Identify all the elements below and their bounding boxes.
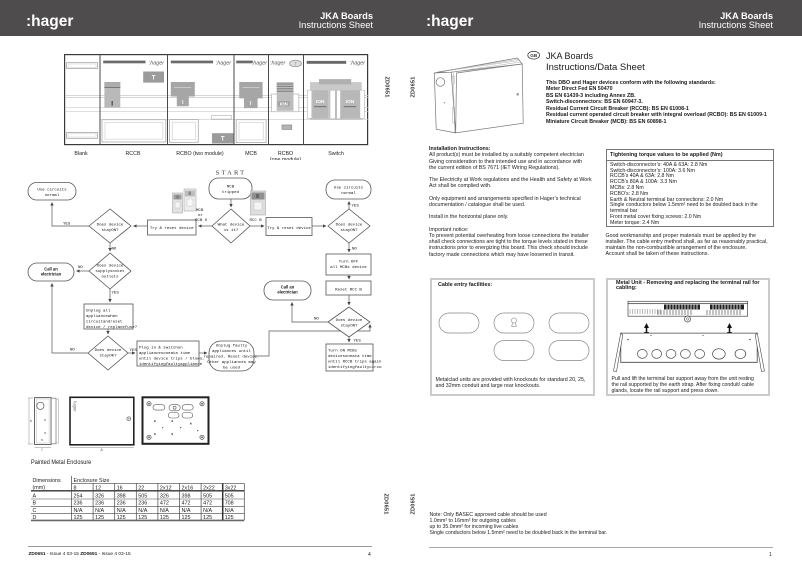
svg-text:Dimensions: Dimensions bbox=[33, 478, 61, 484]
svg-text:125: 125 bbox=[95, 515, 104, 521]
svg-text:16: 16 bbox=[117, 486, 123, 492]
svg-text:2x16: 2x16 bbox=[182, 486, 194, 492]
svg-text:N/A: N/A bbox=[74, 508, 83, 514]
svg-text:GB: GB bbox=[530, 53, 538, 58]
svg-text:472: 472 bbox=[203, 501, 212, 507]
svg-text:Enclosure Size: Enclosure Size bbox=[74, 478, 110, 484]
svg-text:B: B bbox=[30, 419, 32, 423]
svg-text:or: or bbox=[198, 214, 203, 218]
svg-text:A: A bbox=[33, 493, 37, 499]
svg-text:N/A: N/A bbox=[117, 508, 126, 514]
svg-text:Use circuits: Use circuits bbox=[334, 186, 364, 191]
svg-text:ION: ION bbox=[316, 99, 325, 105]
svg-text:T: T bbox=[152, 75, 156, 81]
svg-text:236: 236 bbox=[117, 501, 126, 507]
svg-text:236: 236 bbox=[138, 501, 147, 507]
svg-text:device / replacefuse?: device / replacefuse? bbox=[86, 325, 138, 330]
svg-text:YES: YES bbox=[130, 349, 138, 353]
svg-text:(mm): (mm) bbox=[33, 485, 46, 491]
svg-text:START: START bbox=[216, 170, 247, 177]
svg-text:Switch: Switch bbox=[328, 151, 344, 157]
svg-text:electrician: electrician bbox=[41, 272, 62, 277]
svg-text:circuitandreset: circuitandreset bbox=[86, 320, 123, 325]
svg-text:Does device: Does device bbox=[95, 348, 122, 353]
svg-text:254: 254 bbox=[74, 493, 83, 499]
svg-text:A: A bbox=[101, 448, 104, 452]
svg-text::hager: :hager bbox=[270, 61, 285, 67]
svg-text:(one module): (one module) bbox=[270, 157, 301, 160]
svg-text:electrician: electrician bbox=[277, 290, 298, 295]
svg-text:472: 472 bbox=[160, 501, 169, 507]
svg-text::hager: :hager bbox=[149, 60, 164, 66]
svg-text:NO: NO bbox=[78, 266, 83, 270]
svg-text:Turn OFF: Turn OFF bbox=[339, 261, 359, 265]
svg-text:T: T bbox=[221, 137, 225, 143]
svg-text:N/A: N/A bbox=[203, 508, 212, 514]
svg-text:all MCBs device: all MCBs device bbox=[330, 265, 367, 270]
svg-text:YES: YES bbox=[112, 292, 120, 296]
svg-text:stayON?: stayON? bbox=[341, 325, 359, 329]
svg-text:505: 505 bbox=[138, 493, 147, 499]
svg-text:C: C bbox=[33, 508, 37, 514]
svg-text:398: 398 bbox=[182, 493, 191, 499]
svg-text:until device trips / blows,: until device trips / blows, bbox=[139, 357, 205, 362]
svg-text:outlets: outlets bbox=[102, 275, 120, 280]
svg-text:472: 472 bbox=[182, 501, 191, 507]
svg-text::hager: :hager bbox=[216, 60, 231, 66]
svg-text:2x12: 2x12 bbox=[160, 486, 172, 492]
svg-text:stayOK?: stayOK? bbox=[100, 355, 118, 359]
svg-text:identifyingfaultyappliance: identifyingfaultyappliance bbox=[139, 362, 203, 367]
svg-text:Unplug all: Unplug all bbox=[86, 309, 111, 314]
svg-text:12: 12 bbox=[95, 486, 101, 492]
svg-text:MCB: MCB bbox=[196, 209, 204, 213]
svg-text::hager: :hager bbox=[252, 60, 267, 66]
svg-text:Other appliances may: Other appliances may bbox=[207, 360, 256, 365]
svg-text:125: 125 bbox=[160, 515, 169, 521]
svg-text:125: 125 bbox=[203, 515, 212, 521]
svg-text:708: 708 bbox=[225, 501, 234, 507]
svg-text:appliancewhen: appliancewhen bbox=[86, 314, 118, 319]
svg-text:125: 125 bbox=[182, 515, 191, 521]
svg-text:326: 326 bbox=[95, 493, 104, 499]
svg-text:RCC B: RCC B bbox=[250, 219, 263, 223]
svg-text:is it?: is it? bbox=[224, 228, 239, 233]
svg-text:MCB: MCB bbox=[245, 151, 257, 157]
svg-text:ION: ION bbox=[346, 99, 355, 105]
svg-text:326: 326 bbox=[160, 493, 169, 499]
svg-text:NO: NO bbox=[112, 248, 117, 252]
svg-text:until RCCB trips again,: until RCCB trips again, bbox=[328, 360, 382, 365]
svg-text:What device: What device bbox=[218, 223, 245, 228]
svg-text:Blank: Blank bbox=[74, 151, 88, 157]
svg-text:Try & reset device: Try & reset device bbox=[150, 226, 194, 231]
svg-text:D: D bbox=[33, 515, 37, 521]
svg-text:N/A: N/A bbox=[160, 508, 169, 514]
svg-text:505: 505 bbox=[203, 493, 212, 499]
svg-text:Does device: Does device bbox=[97, 264, 124, 269]
svg-text:NO: NO bbox=[70, 349, 75, 353]
svg-text:505: 505 bbox=[225, 493, 234, 499]
svg-text:RCBO (two module): RCBO (two module) bbox=[176, 151, 224, 157]
svg-text:normal: normal bbox=[341, 191, 356, 196]
svg-text:N/A: N/A bbox=[182, 508, 191, 514]
svg-text:Plug in & switchon: Plug in & switchon bbox=[139, 346, 183, 351]
svg-text:T: T bbox=[294, 61, 297, 66]
svg-text:Does device: Does device bbox=[336, 318, 363, 323]
svg-text:236: 236 bbox=[74, 501, 83, 507]
svg-text:NO: NO bbox=[314, 318, 319, 322]
svg-text:RCCB: RCCB bbox=[125, 151, 140, 157]
svg-text:398: 398 bbox=[117, 493, 126, 499]
svg-text:N/A: N/A bbox=[95, 508, 104, 514]
svg-text:125: 125 bbox=[74, 515, 83, 521]
svg-text:YES: YES bbox=[63, 223, 71, 227]
svg-text:C: C bbox=[41, 448, 43, 452]
svg-text:appliancesoneata time: appliancesoneata time bbox=[139, 351, 191, 356]
svg-text:22: 22 bbox=[138, 486, 144, 492]
svg-text:8: 8 bbox=[74, 486, 77, 492]
svg-text:Does device: Does device bbox=[97, 223, 124, 228]
svg-text:Does device: Does device bbox=[336, 223, 363, 228]
svg-text:3x22: 3x22 bbox=[225, 486, 237, 492]
svg-text:Try & reset device: Try & reset device bbox=[267, 226, 311, 231]
svg-text:YES: YES bbox=[352, 205, 360, 209]
svg-text:tripped: tripped bbox=[222, 190, 240, 195]
svg-text:YES: YES bbox=[354, 340, 362, 344]
svg-text:236: 236 bbox=[95, 501, 104, 507]
svg-text:identifyingfaultycircuit: identifyingfaultycircuit bbox=[328, 365, 382, 370]
svg-text:be used: be used bbox=[223, 366, 241, 371]
svg-text::hager: :hager bbox=[350, 60, 365, 66]
svg-text:ION: ION bbox=[280, 102, 289, 107]
svg-text:Unplug faulty: Unplug faulty bbox=[216, 344, 248, 349]
svg-text:hager: hager bbox=[73, 401, 78, 412]
svg-text:stayON?: stayON? bbox=[102, 229, 120, 233]
svg-text:NO: NO bbox=[352, 248, 357, 252]
svg-text:B: B bbox=[33, 501, 37, 507]
svg-text:appliances until: appliances until bbox=[212, 349, 251, 354]
svg-text:125: 125 bbox=[138, 515, 147, 521]
svg-text:RCB O: RCB O bbox=[195, 219, 208, 223]
svg-text:normal: normal bbox=[45, 193, 60, 198]
svg-text:devicesoneata time: devicesoneata time bbox=[328, 354, 372, 359]
svg-text:125: 125 bbox=[117, 515, 126, 521]
svg-text:Turn ON MCBs: Turn ON MCBs bbox=[328, 350, 358, 354]
svg-text:N/A: N/A bbox=[138, 508, 147, 514]
svg-text:repaired. Reset device.: repaired. Reset device. bbox=[204, 355, 260, 360]
svg-text:N/A: N/A bbox=[225, 508, 234, 514]
svg-text:2x22: 2x22 bbox=[203, 486, 215, 492]
svg-text:Use circuits: Use circuits bbox=[37, 188, 67, 193]
svg-text:stayON?: stayON? bbox=[341, 229, 359, 233]
svg-text:Reset RCC B: Reset RCC B bbox=[335, 289, 362, 293]
svg-text:MCB: MCB bbox=[227, 186, 235, 190]
svg-text:supplysocket: supplysocket bbox=[95, 269, 125, 274]
svg-text:125: 125 bbox=[225, 515, 234, 521]
